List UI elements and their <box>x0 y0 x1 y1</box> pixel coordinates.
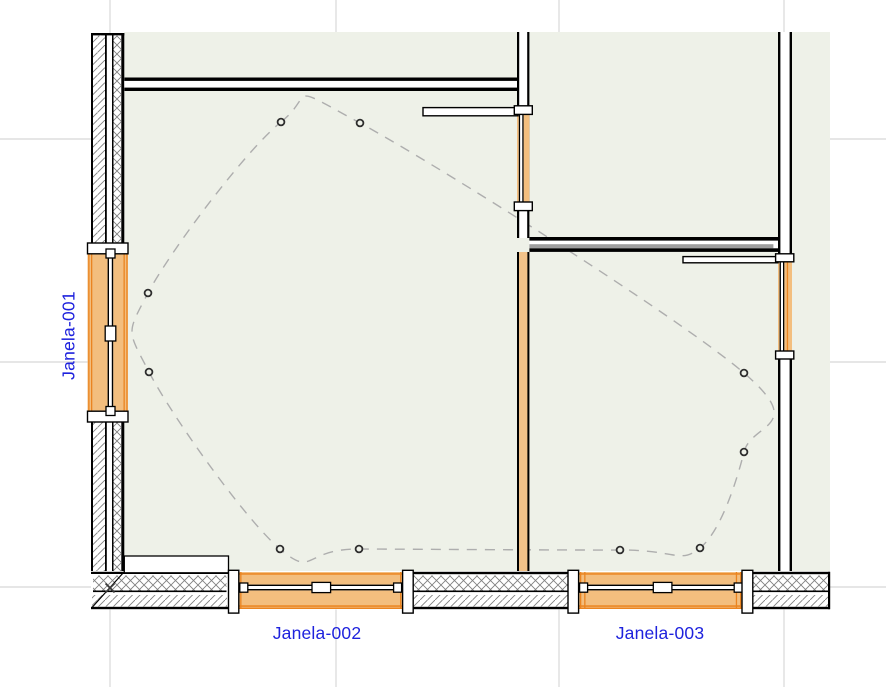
spline-vertex-marker[interactable] <box>145 290 152 297</box>
spline-vertex-marker[interactable] <box>697 545 704 552</box>
window-opening-vertical-wall[interactable] <box>517 114 529 203</box>
wall-vertical-partition-orange[interactable] <box>517 252 529 573</box>
spline-vertex-marker[interactable] <box>617 547 624 554</box>
spline-vertex-marker[interactable] <box>146 369 153 376</box>
floor-plan-drawing <box>0 0 886 687</box>
wall-inner-leaf <box>124 556 228 573</box>
window-janela-001[interactable] <box>88 243 129 422</box>
floor-plan-canvas: Janela-001 Janela-002 Janela-003 <box>0 0 886 687</box>
spline-vertex-marker[interactable] <box>357 120 364 127</box>
spline-vertex-marker[interactable] <box>741 370 748 377</box>
window-janela-002[interactable] <box>239 572 403 609</box>
spline-vertex-marker[interactable] <box>278 119 285 126</box>
wall-middle-interior[interactable] <box>529 237 778 252</box>
window-label-janela-003[interactable]: Janela-003 <box>590 623 730 644</box>
window-label-janela-001[interactable]: Janela-001 <box>59 258 80 414</box>
spline-vertex-marker[interactable] <box>356 546 363 553</box>
window-opening-right-wall[interactable] <box>778 262 792 352</box>
beam-line-right[interactable] <box>683 257 778 263</box>
spline-vertex-marker[interactable] <box>741 449 748 456</box>
window-label-janela-002[interactable]: Janela-002 <box>247 623 387 644</box>
window-janela-003[interactable] <box>579 572 743 609</box>
spline-vertex-marker[interactable] <box>277 546 284 553</box>
wall-top-interior[interactable] <box>124 78 517 92</box>
beam-line-top[interactable] <box>423 108 518 116</box>
